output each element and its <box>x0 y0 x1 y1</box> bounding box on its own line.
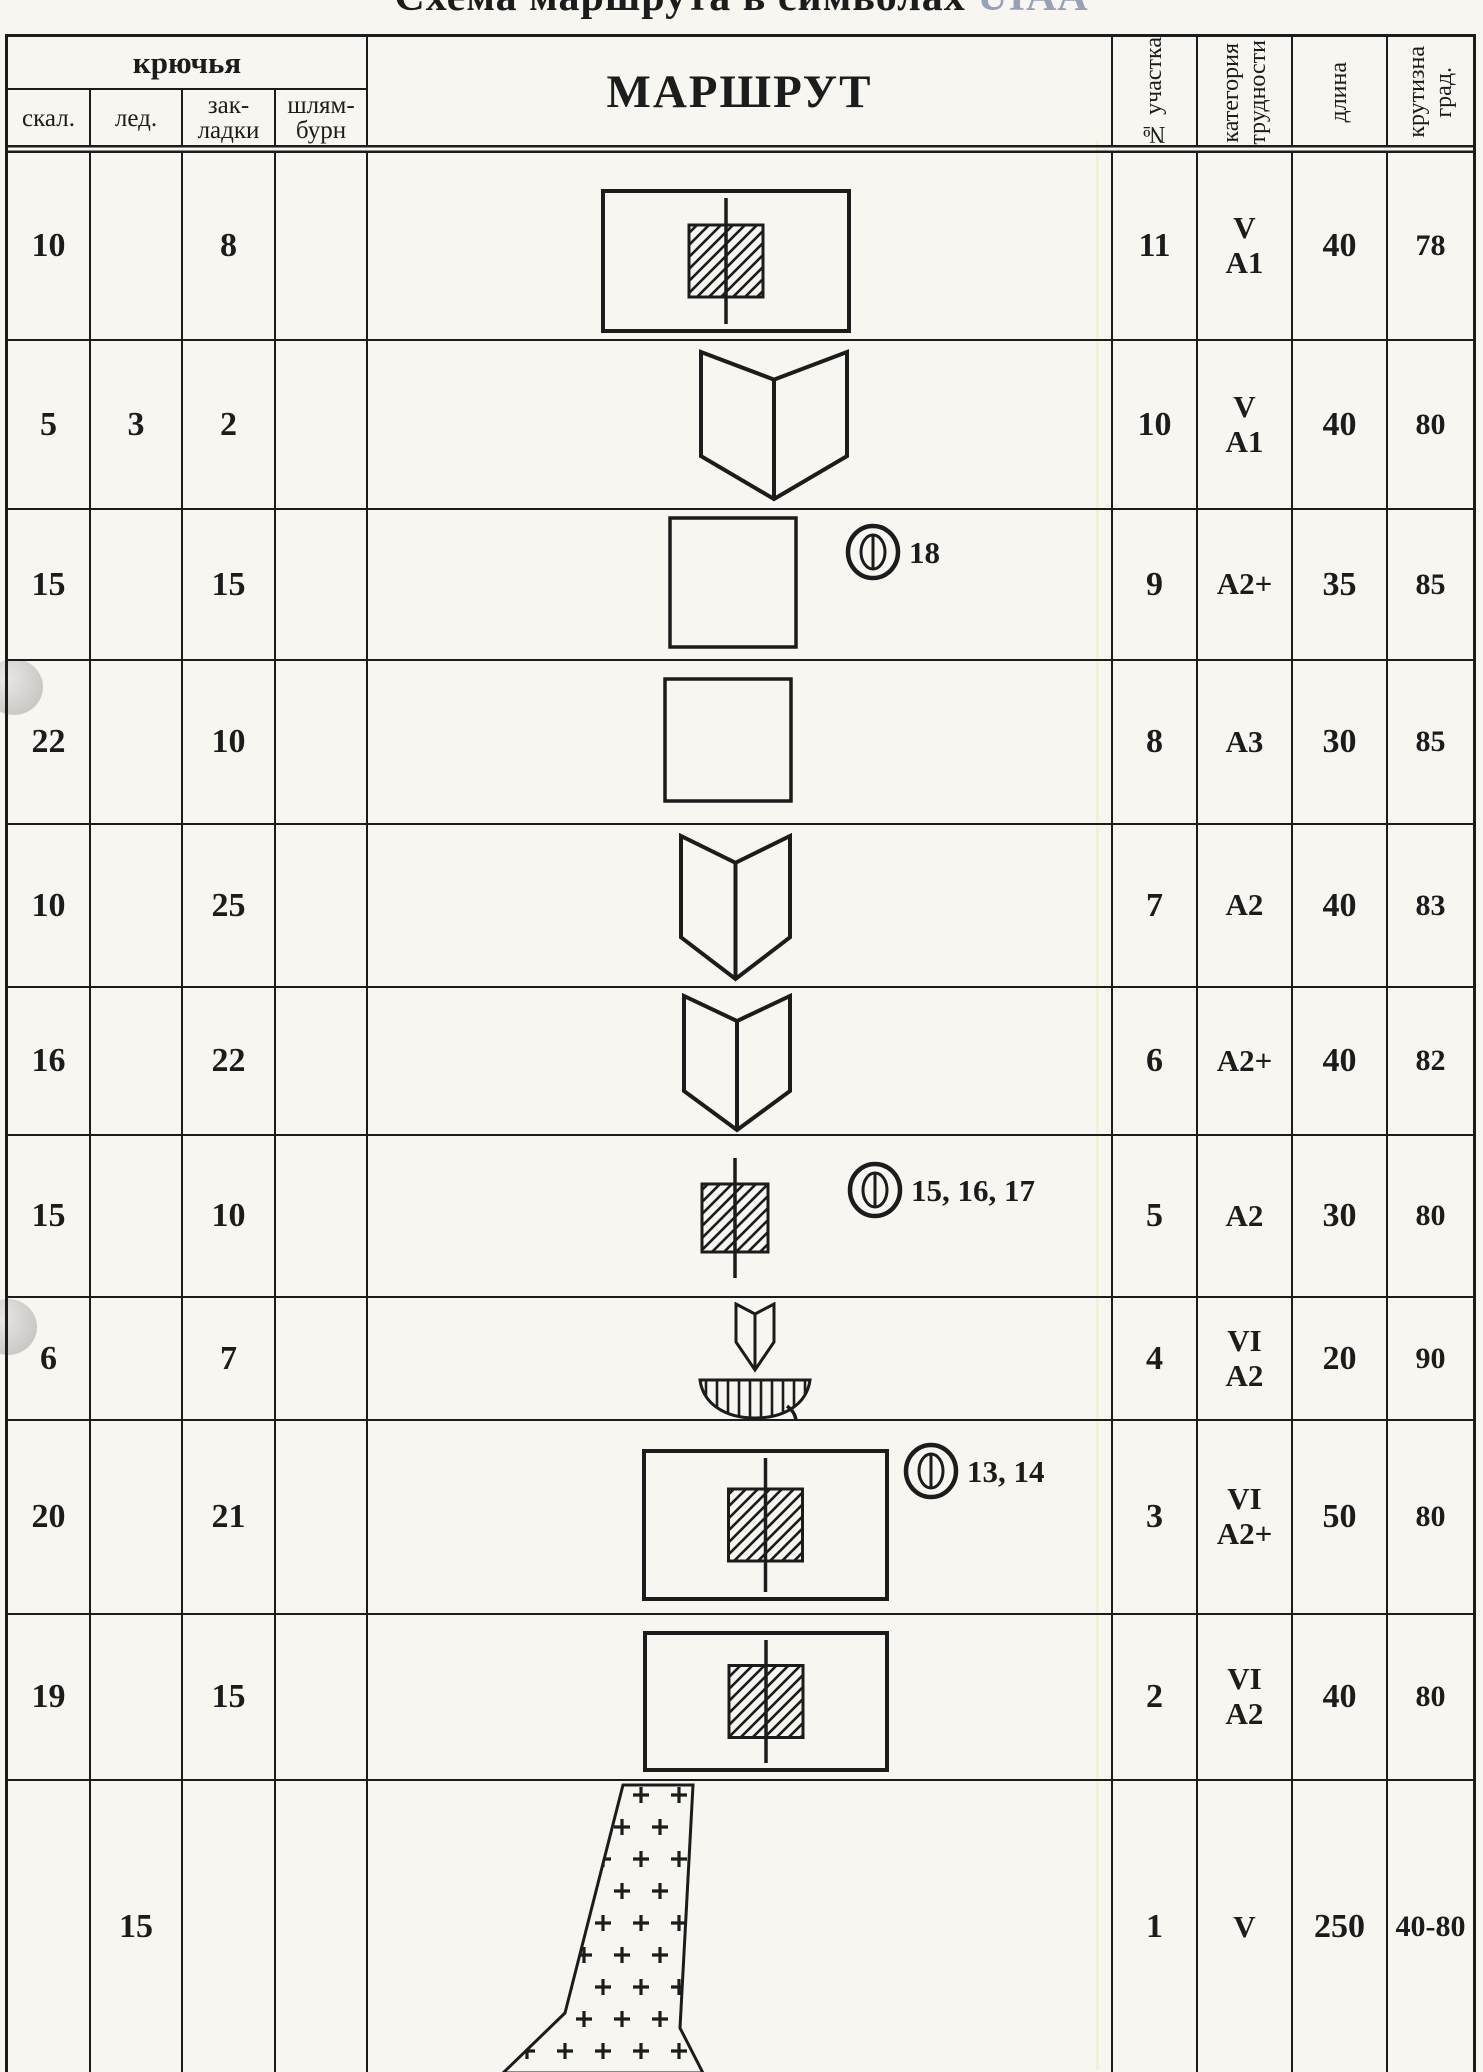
header-pitons-label: крючья <box>8 37 366 90</box>
cell-nuts: 15 <box>183 1615 276 1779</box>
cell-steepness: 85 <box>1388 510 1473 659</box>
table-header: крючья скал. лед. зак- ладки шлям- бурн … <box>8 37 1473 145</box>
belay-station-numbers: 15, 16, 17 <box>911 1175 1035 1206</box>
table-row: 16 22 6 A2+ 40 82 <box>8 988 1473 1136</box>
cell-rock-pitons <box>8 1781 91 2072</box>
cell-section-number: 7 <box>1113 825 1198 986</box>
cell-difficulty-category: V <box>1198 1781 1293 2072</box>
cell-section-number: 2 <box>1113 1615 1198 1779</box>
cell-rock-pitons: 16 <box>8 988 91 1134</box>
cell-ice-pitons <box>91 510 183 659</box>
cell-rock-pitons: 10 <box>8 825 91 986</box>
cell-nuts: 15 <box>183 510 276 659</box>
cell-nuts: 10 <box>183 1136 276 1296</box>
cell-steepness: 80 <box>1388 341 1473 508</box>
cell-bolts <box>276 661 368 823</box>
cell-ice-pitons <box>91 1421 183 1613</box>
table-row: 15 15 18 9 A2+ 35 85 <box>8 510 1473 661</box>
cell-length: 35 <box>1293 510 1388 659</box>
route-symbol-rect-plug <box>643 1631 889 1772</box>
header-pitons-group: крючья скал. лед. зак- ладки шлям- бурн <box>8 37 368 147</box>
cell-section-number: 4 <box>1113 1298 1198 1419</box>
belay-station-icon <box>902 1441 960 1501</box>
header-col-bolts: шлям- бурн <box>276 90 366 147</box>
page-title: Схема маршрута в символах UIAA <box>0 0 1483 21</box>
cell-bolts <box>276 825 368 986</box>
cell-section-number: 3 <box>1113 1421 1198 1613</box>
table-row: 10 25 7 A2 40 83 <box>8 825 1473 988</box>
cell-rock-pitons: 22 <box>8 661 91 823</box>
header-col-rock: скал. <box>8 90 91 147</box>
cell-length: 20 <box>1293 1298 1388 1419</box>
route-symbol-inner-corner <box>678 833 793 982</box>
page-title-main: Схема маршрута в символах <box>394 0 965 20</box>
cell-length: 250 <box>1293 1781 1388 2072</box>
cell-nuts: 7 <box>183 1298 276 1419</box>
route-symbol-square <box>663 677 793 803</box>
route-symbol-rect-plug <box>642 1449 889 1601</box>
cell-ice-pitons <box>91 1136 183 1296</box>
cell-length: 40 <box>1293 988 1388 1134</box>
cell-nuts: 22 <box>183 988 276 1134</box>
cell-bolts <box>276 1781 368 2072</box>
belay-station-marker: 18 <box>844 522 940 582</box>
cell-nuts: 10 <box>183 661 276 823</box>
table-row: 15 1 V 250 40-80 <box>8 1781 1473 2072</box>
cell-steepness: 40-80 <box>1388 1781 1473 2072</box>
header-col-nuts: зак- ладки <box>183 90 276 147</box>
cell-route-diagram: 15, 16, 17 <box>368 1136 1113 1296</box>
cell-route-diagram <box>368 1615 1113 1779</box>
route-symbol-inner-corner <box>698 349 850 502</box>
cell-bolts <box>276 510 368 659</box>
cell-rock-pitons: 5 <box>8 341 91 508</box>
table-row: 10 8 11 V A1 40 78 <box>8 153 1473 341</box>
cell-difficulty-category: A2+ <box>1198 988 1293 1134</box>
cell-length: 40 <box>1293 341 1388 508</box>
cell-ice-pitons <box>91 1615 183 1779</box>
cell-steepness: 83 <box>1388 825 1473 986</box>
cell-steepness: 85 <box>1388 661 1473 823</box>
cell-section-number: 1 <box>1113 1781 1198 2072</box>
cell-route-diagram: 18 <box>368 510 1113 659</box>
cell-ice-pitons <box>91 153 183 339</box>
cell-nuts <box>183 1781 276 2072</box>
table-row: 22 10 8 A3 30 85 <box>8 661 1473 825</box>
cell-length: 50 <box>1293 1421 1388 1613</box>
header-section-number: № участка <box>1113 37 1198 147</box>
route-symbol-square <box>668 516 798 649</box>
cell-difficulty-category: V A1 <box>1198 341 1293 508</box>
cell-difficulty-category: A3 <box>1198 661 1293 823</box>
belay-station-icon <box>846 1160 904 1220</box>
cell-section-number: 9 <box>1113 510 1198 659</box>
cell-bolts <box>276 988 368 1134</box>
cell-route-diagram <box>368 661 1113 823</box>
page-title-uiaa: UIAA <box>977 0 1088 20</box>
cell-section-number: 11 <box>1113 153 1198 339</box>
cell-difficulty-category: VI A2+ <box>1198 1421 1293 1613</box>
cell-difficulty-category: A2 <box>1198 1136 1293 1296</box>
cell-ice-pitons <box>91 988 183 1134</box>
header-length: длина <box>1293 37 1388 147</box>
cell-bolts <box>276 1421 368 1613</box>
cell-steepness: 80 <box>1388 1615 1473 1779</box>
cell-difficulty-category: VI A2 <box>1198 1298 1293 1419</box>
route-symbol-snow-couloir <box>478 1783 838 2072</box>
cell-difficulty-category: A2+ <box>1198 510 1293 659</box>
table-body: 10 8 11 V A1 40 78 5 3 2 10 V A1 40 80 1… <box>8 153 1473 2072</box>
cell-length: 40 <box>1293 825 1388 986</box>
cell-difficulty-category: VI A2 <box>1198 1615 1293 1779</box>
cell-section-number: 5 <box>1113 1136 1198 1296</box>
cell-difficulty-category: A2 <box>1198 825 1293 986</box>
cell-bolts <box>276 153 368 339</box>
cell-length: 40 <box>1293 1615 1388 1779</box>
cell-steepness: 80 <box>1388 1136 1473 1296</box>
cell-rock-pitons: 6 <box>8 1298 91 1419</box>
table-row: 6 7 4 VI A2 20 90 <box>8 1298 1473 1421</box>
belay-station-icon <box>844 522 902 582</box>
cell-rock-pitons: 19 <box>8 1615 91 1779</box>
cell-bolts <box>276 1298 368 1419</box>
cell-route-diagram <box>368 341 1113 508</box>
cell-section-number: 10 <box>1113 341 1198 508</box>
cell-nuts: 8 <box>183 153 276 339</box>
header-col-ice: лед. <box>91 90 183 147</box>
header-steepness: крутизна град. <box>1388 37 1473 147</box>
cell-steepness: 90 <box>1388 1298 1473 1419</box>
header-route: МАРШРУТ <box>368 37 1113 147</box>
cell-length: 40 <box>1293 153 1388 339</box>
cell-route-diagram <box>368 153 1113 339</box>
cell-steepness: 78 <box>1388 153 1473 339</box>
cell-route-diagram <box>368 825 1113 986</box>
cell-bolts <box>276 341 368 508</box>
cell-section-number: 6 <box>1113 988 1198 1134</box>
cell-ice-pitons <box>91 661 183 823</box>
belay-station-numbers: 18 <box>909 537 940 568</box>
route-symbol-rect-plug <box>601 189 851 333</box>
cell-route-diagram: 13, 14 <box>368 1421 1113 1613</box>
cell-ice-pitons <box>91 825 183 986</box>
table-row: 5 3 2 10 V A1 40 80 <box>8 341 1473 510</box>
table-row: 15 10 15, 16, 17 5 A2 30 80 <box>8 1136 1473 1298</box>
cell-length: 30 <box>1293 661 1388 823</box>
cell-rock-pitons: 20 <box>8 1421 91 1613</box>
cell-nuts: 25 <box>183 825 276 986</box>
cell-route-diagram <box>368 988 1113 1134</box>
cell-route-diagram <box>368 1781 1113 2072</box>
belay-station-numbers: 13, 14 <box>967 1456 1045 1487</box>
cell-nuts: 2 <box>183 341 276 508</box>
cell-steepness: 80 <box>1388 1421 1473 1613</box>
cell-difficulty-category: V A1 <box>1198 153 1293 339</box>
cell-bolts <box>276 1136 368 1296</box>
table-row: 19 15 2 VI A2 40 80 <box>8 1615 1473 1781</box>
scanned-route-schema-page: Схема маршрута в символах UIAA крючья ск… <box>0 0 1483 2072</box>
cell-rock-pitons: 10 <box>8 153 91 339</box>
cell-steepness: 82 <box>1388 988 1473 1134</box>
belay-station-marker: 15, 16, 17 <box>846 1160 1035 1220</box>
cell-length: 30 <box>1293 1136 1388 1296</box>
cell-ice-pitons: 3 <box>91 341 183 508</box>
cell-route-diagram <box>368 1298 1113 1419</box>
cell-section-number: 8 <box>1113 661 1198 823</box>
route-table: крючья скал. лед. зак- ладки шлям- бурн … <box>5 34 1476 2072</box>
route-symbol-plug <box>700 1156 770 1280</box>
header-difficulty-category: категория трудности <box>1198 37 1293 147</box>
header-pitons-subcolumns: скал. лед. зак- ладки шлям- бурн <box>8 90 366 147</box>
route-symbol-inner-corner <box>681 993 793 1133</box>
cell-bolts <box>276 1615 368 1779</box>
cell-ice-pitons <box>91 1298 183 1419</box>
cell-rock-pitons: 15 <box>8 1136 91 1296</box>
cell-ice-pitons: 15 <box>91 1781 183 2072</box>
belay-station-marker: 13, 14 <box>902 1441 1045 1501</box>
route-symbol-corner-overhang <box>690 1302 820 1421</box>
cell-rock-pitons: 15 <box>8 510 91 659</box>
table-row: 20 21 13, 14 3 VI A2+ 50 80 <box>8 1421 1473 1615</box>
cell-nuts: 21 <box>183 1421 276 1613</box>
